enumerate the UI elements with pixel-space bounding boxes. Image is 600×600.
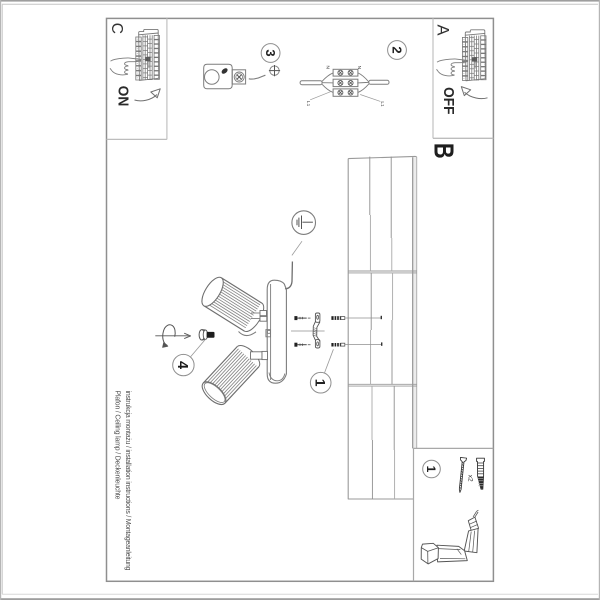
svg-text:OFF: OFF [440, 87, 457, 115]
svg-text:A: A [434, 24, 452, 35]
svg-text:Plafon / Ceiling lamp / Decken: Plafon / Ceiling lamp / Deckenleuchte [114, 391, 121, 500]
svg-text:N: N [324, 66, 330, 70]
svg-text:C: C [108, 23, 125, 34]
svg-text:x2: x2 [467, 475, 474, 482]
svg-text:L1: L1 [305, 101, 311, 107]
svg-text:B: B [428, 143, 459, 159]
svg-text:4: 4 [174, 361, 190, 369]
svg-text:instrukcja montażu / installat: instrukcja montażu / installation instru… [124, 391, 131, 571]
svg-text:L1: L1 [379, 101, 385, 107]
svg-text:N: N [356, 66, 362, 70]
svg-text:3: 3 [263, 49, 278, 56]
svg-text:1: 1 [424, 466, 438, 473]
svg-text:1: 1 [312, 379, 328, 387]
svg-text:ON: ON [115, 86, 132, 107]
svg-text:2: 2 [389, 46, 404, 53]
